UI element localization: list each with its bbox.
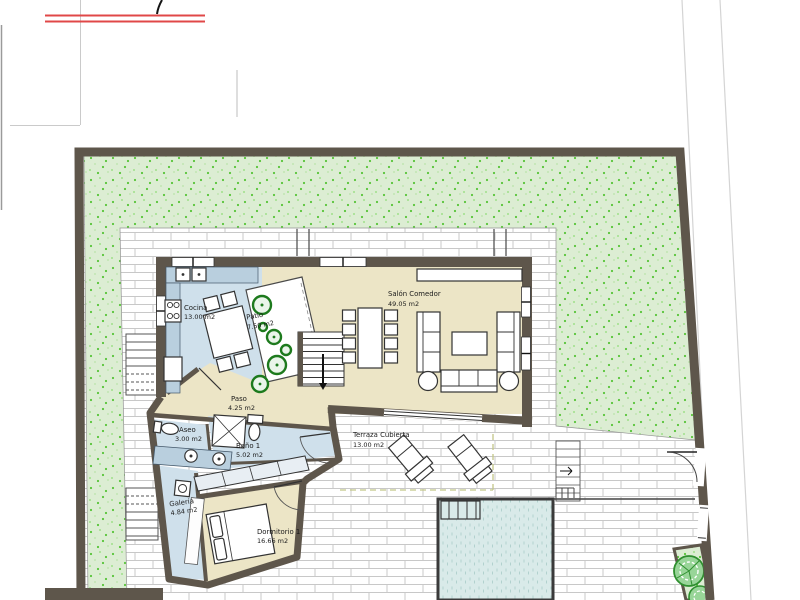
label-aseo-name: Aseo — [179, 426, 196, 434]
side-table — [419, 372, 438, 391]
side-table — [500, 372, 519, 391]
window-cocina-west — [157, 296, 166, 326]
label-dormitorio-name: Dormitorio 1 — [257, 528, 300, 536]
label-terraza-area: 13.00 m2 — [353, 441, 384, 449]
interior-staircase — [298, 332, 344, 390]
label-salon-name: Salón Comedor — [388, 290, 441, 298]
coffee-table — [452, 332, 487, 355]
retaining-wall — [45, 588, 163, 600]
tree-icon — [674, 556, 704, 586]
label-salon-area: 49.05 m2 — [388, 300, 419, 308]
label-cocina-area: 13.00 m2 — [184, 313, 215, 321]
floor-plan-page: Cocina 13.00 m2 Patio 7.50 m2 Salón Come… — [0, 0, 800, 600]
stove-icon — [165, 300, 181, 322]
garden-stair-lower — [126, 488, 158, 540]
garden-stair-upper — [126, 334, 158, 395]
window-salon-east-2 — [522, 337, 531, 370]
label-terraza-name: Terraza Cubierta — [352, 431, 410, 439]
fridge-icon — [164, 357, 182, 381]
window-patio-north — [320, 258, 366, 267]
pool-steps — [441, 501, 480, 519]
label-bano-area: 5.02 m2 — [236, 451, 263, 459]
label-cocina-name: Cocina — [184, 304, 207, 312]
label-paso-area: 4.25 m2 — [228, 404, 255, 412]
label-paso-name: Paso — [231, 395, 247, 403]
label-dormitorio-area: 16.66 m2 — [257, 537, 288, 545]
dining-table-set — [343, 308, 398, 368]
washing-machine-icon — [174, 480, 190, 496]
floor-plan-canvas: Cocina 13.00 m2 Patio 7.50 m2 Salón Come… — [0, 0, 800, 600]
label-bano-name: Baño 1 — [236, 442, 260, 450]
sideboard — [417, 269, 522, 281]
label-aseo-area: 3.00 m2 — [175, 435, 202, 443]
window-salon-east-1 — [522, 287, 531, 317]
window-cocina-north — [172, 258, 214, 267]
